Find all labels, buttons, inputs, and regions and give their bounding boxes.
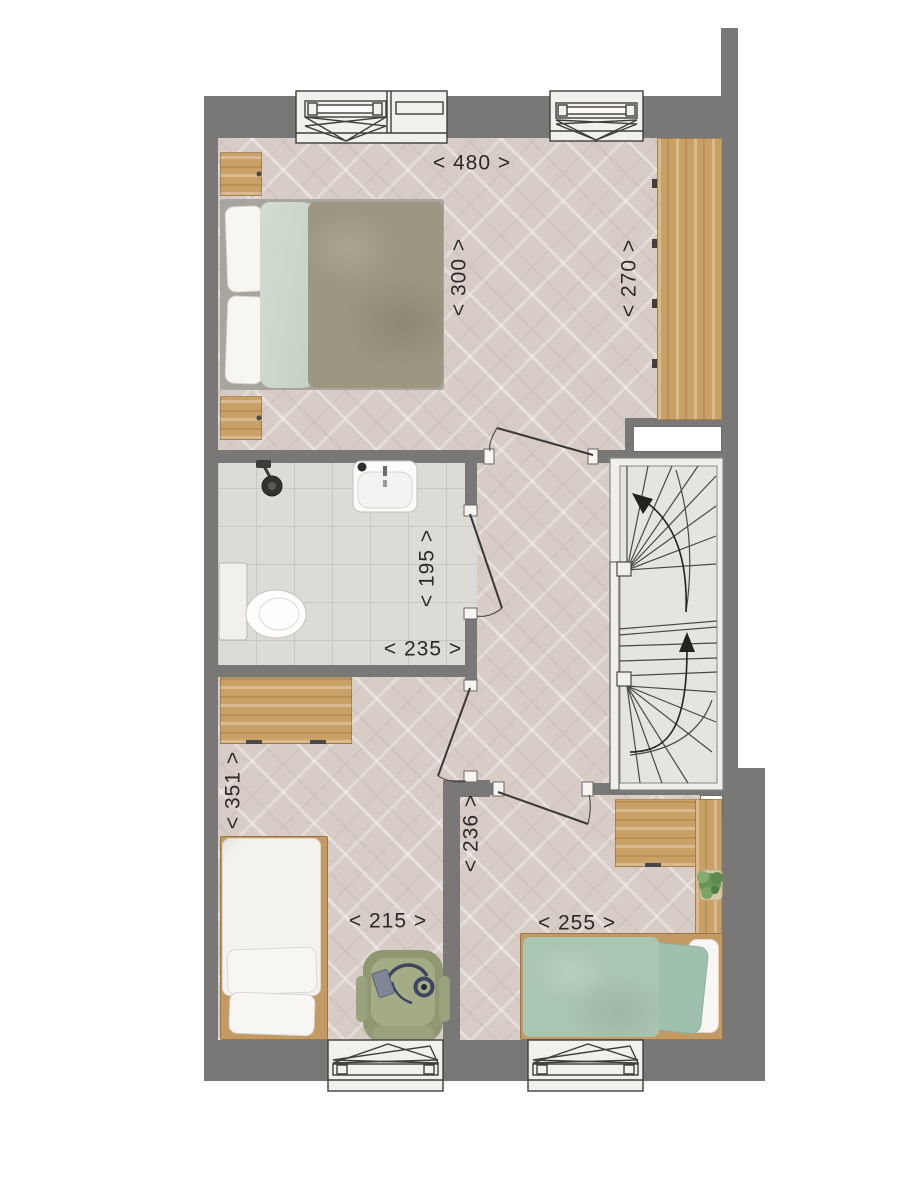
nightstand-bottom <box>220 396 262 440</box>
exterior-wall-top <box>204 96 738 138</box>
exterior-wall-right-extension <box>738 768 765 1081</box>
exterior-wall-top-right-stub <box>721 28 738 98</box>
wall-master-landing <box>590 450 625 463</box>
dim-master-width: < 480 > <box>433 153 511 174</box>
bedroom3-desk <box>615 799 697 867</box>
exterior-wall-left <box>204 96 218 1081</box>
dim-bathroom-depth: < 195 > <box>417 529 438 607</box>
exterior-wall-bottom <box>204 1040 765 1081</box>
bedroom2-desk <box>220 677 352 744</box>
desk-chair-arm-right <box>439 976 450 1022</box>
floor-plan-canvas: < 480 > < 300 > < 270 > < 195 > < 235 > … <box>0 0 900 1200</box>
wall-bathroom-landing-upper <box>465 450 477 513</box>
wall-bedroom3-top-right <box>588 783 738 795</box>
exterior-wall-right <box>722 96 738 1040</box>
wall-bathroom-bedroom2 <box>204 665 475 677</box>
desk-chair-backrest <box>372 1026 434 1041</box>
dim-wardrobe-wall: < 270 > <box>619 239 640 317</box>
wardrobe <box>657 138 722 420</box>
dim-bedroom3-depth: < 236 > <box>461 794 482 872</box>
master-bed-duvet <box>308 202 443 388</box>
nightstand-top <box>220 152 262 196</box>
bedroom2-pillow-1 <box>226 946 318 995</box>
wall-master-bathroom <box>204 450 488 463</box>
dim-bedroom2-depth: < 351 > <box>223 751 244 829</box>
stairwell-niche <box>633 426 722 452</box>
bedroom3-desk-return <box>695 799 722 937</box>
dim-bedroom2-width: < 215 > <box>349 911 427 932</box>
desk-chair-arm-left <box>356 976 367 1022</box>
dim-master-depth: < 300 > <box>449 238 470 316</box>
bedroom3-duvet <box>523 937 659 1037</box>
bedroom2-pillow-2 <box>228 992 315 1037</box>
dim-bedroom3-width: < 255 > <box>538 913 616 934</box>
desk-chair-pad <box>371 958 435 1026</box>
dim-bathroom-width: < 235 > <box>384 639 462 660</box>
